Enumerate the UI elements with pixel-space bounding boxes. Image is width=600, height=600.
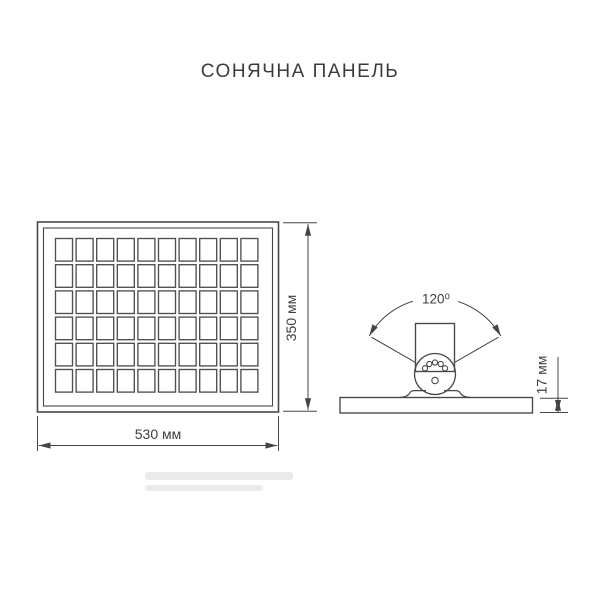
solar-cell (220, 239, 237, 262)
solar-cell (97, 317, 114, 340)
solar-cell (76, 239, 93, 262)
solar-cell (56, 239, 73, 262)
panel-edge-bar (340, 398, 533, 414)
solar-cell (56, 370, 73, 393)
thickness-dimension: 17 мм (534, 356, 569, 413)
solar-cell (138, 239, 155, 262)
solar-cell (76, 265, 93, 288)
hinge-hole (432, 360, 437, 365)
hinge-hole (427, 361, 432, 366)
solar-cell (179, 265, 196, 288)
solar-cell (220, 370, 237, 393)
technical-drawing: 530 мм 350 мм 120⁰ (0, 0, 600, 600)
width-dimension: 530 мм (38, 416, 279, 451)
solar-cell (138, 317, 155, 340)
solar-cell (97, 370, 114, 393)
solar-cell (97, 265, 114, 288)
solar-cell (200, 239, 217, 262)
solar-cell (220, 317, 237, 340)
solar-cell (179, 239, 196, 262)
solar-cell (200, 265, 217, 288)
bracket-arm (416, 324, 455, 372)
solar-cell (138, 343, 155, 366)
solar-cell (241, 291, 258, 314)
solar-cell (159, 239, 176, 262)
solar-cell (56, 291, 73, 314)
solar-cell (159, 370, 176, 393)
solar-cell (220, 265, 237, 288)
hinge-adjustment-holes (422, 360, 447, 371)
angle-leg-left (372, 337, 416, 362)
panel-front-view (38, 222, 279, 412)
solar-cell (117, 370, 134, 393)
bracket-foot-right (444, 391, 470, 398)
solar-cell (97, 343, 114, 366)
solar-cell (76, 370, 93, 393)
hinge-hole (438, 361, 443, 366)
solar-cell (138, 291, 155, 314)
solar-cell (117, 343, 134, 366)
solar-cell (200, 291, 217, 314)
solar-cell (76, 291, 93, 314)
solar-cell (200, 370, 217, 393)
solar-cell (159, 291, 176, 314)
solar-cell (159, 317, 176, 340)
solar-cell (220, 343, 237, 366)
height-dimension-label: 350 мм (283, 295, 299, 342)
solar-cell (220, 291, 237, 314)
tilt-angle-label: 120⁰ (422, 292, 451, 307)
hinge-hole (422, 366, 427, 371)
solar-cell (241, 265, 258, 288)
solar-cell (200, 343, 217, 366)
solar-cell (241, 239, 258, 262)
thickness-dimension-label: 17 мм (534, 356, 550, 395)
solar-cell (179, 343, 196, 366)
height-dimension: 350 мм (283, 223, 317, 412)
solar-cell (179, 317, 196, 340)
solar-cell (56, 343, 73, 366)
solar-cell (97, 291, 114, 314)
solar-cell (241, 317, 258, 340)
solar-cell (159, 265, 176, 288)
solar-cell (56, 317, 73, 340)
solar-cell (179, 291, 196, 314)
hinge-hole (442, 366, 447, 371)
solar-cell (117, 317, 134, 340)
angle-leg-right (455, 337, 499, 362)
solar-cell (200, 317, 217, 340)
solar-cell (241, 343, 258, 366)
panel-side-view: 120⁰ (340, 290, 533, 413)
solar-cell (76, 343, 93, 366)
solar-cell (76, 317, 93, 340)
solar-cell (241, 370, 258, 393)
solar-cell (117, 265, 134, 288)
solar-panel-spec-sheet: СОНЯЧНА ПАНЕЛЬ 530 мм (0, 0, 600, 600)
solar-cell (97, 239, 114, 262)
bracket-foot-left (400, 391, 426, 398)
solar-cell (56, 265, 73, 288)
solar-cell (159, 343, 176, 366)
solar-cell (138, 265, 155, 288)
hinge-axle-hole (432, 377, 438, 383)
solar-cell (117, 239, 134, 262)
watermark-ghost (145, 472, 293, 491)
solar-cell (179, 370, 196, 393)
width-dimension-label: 530 мм (135, 426, 182, 442)
cell-grid (56, 239, 258, 393)
solar-cell (117, 291, 134, 314)
solar-cell (138, 370, 155, 393)
